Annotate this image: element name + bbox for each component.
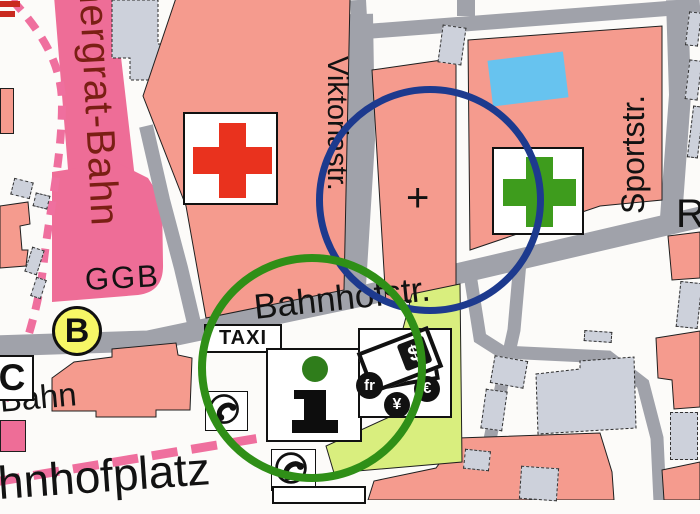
poi-marker-partial[interactable]	[272, 486, 366, 504]
hospital-marker[interactable]	[183, 112, 278, 205]
street-label-sportstrasse: Sportstr.	[616, 95, 650, 214]
street-label-r-partial: R	[676, 192, 700, 237]
gray-building	[676, 281, 700, 329]
block-east-mid	[656, 331, 700, 409]
pink-building	[0, 420, 26, 452]
gray-building	[490, 355, 528, 388]
block-east-upper	[668, 232, 700, 280]
railway-mark	[0, 1, 20, 7]
residential-building	[0, 88, 14, 134]
block-west-small	[0, 202, 30, 268]
gray-building-southeast	[536, 357, 636, 434]
railway-mark	[0, 11, 15, 17]
gray-building	[463, 449, 491, 472]
city-map: { "map": { "streets": { "gornergrat_bahn…	[0, 0, 700, 500]
gray-building	[584, 330, 613, 343]
block-east-lower	[662, 462, 700, 500]
road-sportstrasse	[671, 0, 680, 218]
green-annotation-circle	[198, 254, 426, 482]
gray-building	[519, 466, 559, 502]
label-ggb: GGB	[84, 258, 161, 298]
red-cross-icon	[193, 147, 272, 174]
pool	[487, 52, 568, 107]
gray-building	[670, 412, 698, 460]
stop-c-marker[interactable]: C	[0, 355, 34, 401]
bus-stop-marker[interactable]: B	[52, 306, 102, 356]
